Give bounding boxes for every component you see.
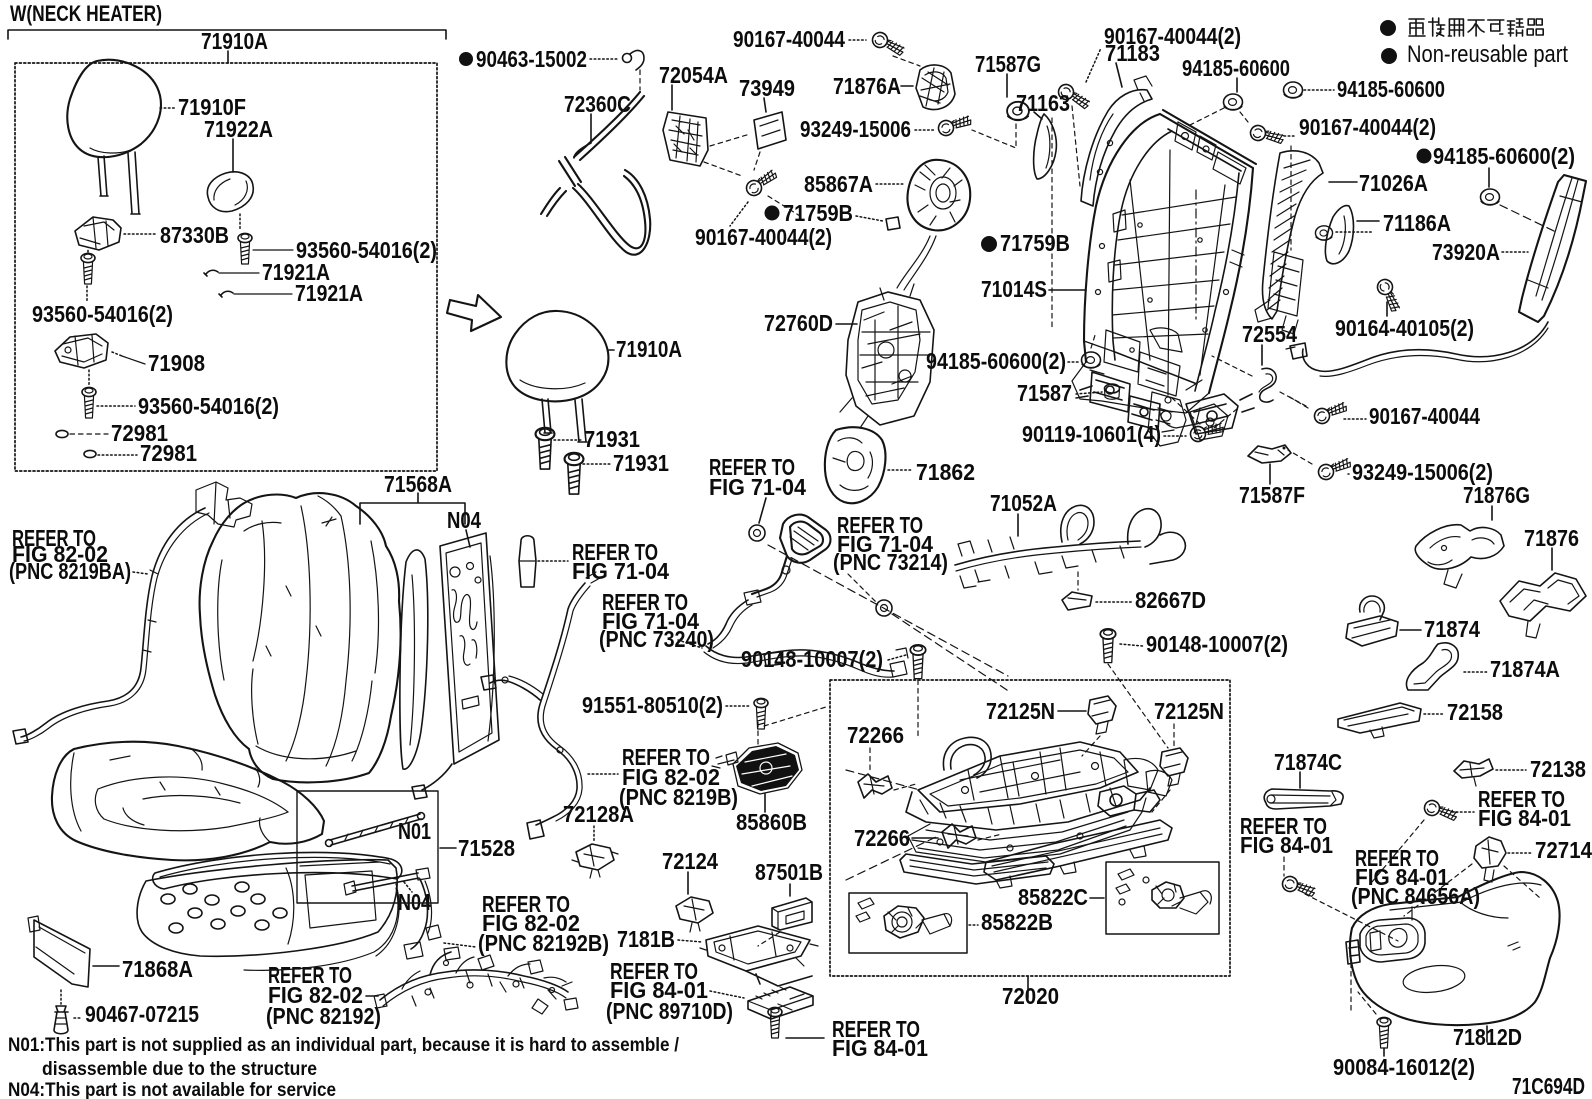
svg-text:71759B: 71759B <box>1000 230 1070 256</box>
svg-text:Non-reusable part: Non-reusable part <box>1407 41 1568 68</box>
svg-text:W(NECK HEATER): W(NECK HEATER) <box>10 1 162 26</box>
svg-text:90148-10007(2): 90148-10007(2) <box>1146 631 1288 657</box>
svg-text:71587G: 71587G <box>975 51 1041 77</box>
svg-text:N01: N01 <box>398 818 431 844</box>
svg-text:72125N: 72125N <box>1154 698 1224 724</box>
svg-text:72128A: 72128A <box>563 801 634 827</box>
svg-text:73949: 73949 <box>739 75 795 101</box>
svg-text:(PNC 8219B): (PNC 8219B) <box>619 784 738 810</box>
svg-text:(PNC 73240): (PNC 73240) <box>599 626 714 652</box>
svg-text:71014S: 71014S <box>981 276 1047 302</box>
svg-text:90167-40044(2): 90167-40044(2) <box>695 224 832 250</box>
svg-text:71931: 71931 <box>584 426 640 452</box>
svg-text:72266: 72266 <box>847 722 904 748</box>
svg-text:71922A: 71922A <box>204 116 273 142</box>
svg-text:71528: 71528 <box>458 835 515 861</box>
svg-text:91551-80510(2): 91551-80510(2) <box>582 692 723 718</box>
svg-text:71759B: 71759B <box>783 200 853 226</box>
svg-text:85822B: 85822B <box>981 909 1053 935</box>
svg-text:72020: 72020 <box>1002 983 1059 1009</box>
svg-text:72266: 72266 <box>854 825 910 851</box>
svg-text:85867A: 85867A <box>804 171 873 197</box>
svg-text:90084-16012(2): 90084-16012(2) <box>1333 1054 1475 1080</box>
svg-text:71874: 71874 <box>1424 616 1480 642</box>
svg-text:71587F: 71587F <box>1239 482 1305 508</box>
svg-text:72714: 72714 <box>1535 837 1592 863</box>
svg-text:N04:This part is not available: N04:This part is not available for servi… <box>8 1079 336 1099</box>
svg-text:94185-60600(2): 94185-60600(2) <box>926 348 1066 374</box>
svg-text:71876: 71876 <box>1524 525 1579 551</box>
svg-text:7181B: 7181B <box>617 926 675 952</box>
svg-text:87501B: 87501B <box>755 859 823 885</box>
svg-text:90167-40044: 90167-40044 <box>733 26 845 52</box>
svg-text:(PNC 8219BA): (PNC 8219BA) <box>9 558 131 584</box>
svg-text:FIG 84-01: FIG 84-01 <box>832 1035 928 1061</box>
svg-text:71921A: 71921A <box>295 280 363 306</box>
svg-text:71C694D: 71C694D <box>1512 1073 1585 1099</box>
svg-text:71186A: 71186A <box>1383 210 1451 236</box>
svg-text:disassemble due to the structu: disassemble due to the structure <box>42 1058 317 1080</box>
svg-text:90167-40044: 90167-40044 <box>1369 403 1480 429</box>
svg-text:(PNC 82192): (PNC 82192) <box>266 1003 381 1029</box>
svg-text:94185-60600(2): 94185-60600(2) <box>1433 143 1575 169</box>
svg-text:72125N: 72125N <box>986 698 1055 724</box>
svg-text:N04: N04 <box>447 507 481 533</box>
svg-text:N01:This part is not supplied: N01:This part is not supplied as an indi… <box>8 1034 680 1056</box>
svg-text:90467-07215: 90467-07215 <box>85 1001 199 1027</box>
svg-text:72981: 72981 <box>140 440 197 466</box>
svg-text:90463-15002: 90463-15002 <box>476 46 587 72</box>
svg-text:FIG 84-01: FIG 84-01 <box>1240 832 1333 858</box>
svg-text:71908: 71908 <box>148 350 205 376</box>
svg-text:72760D: 72760D <box>764 310 833 336</box>
svg-text:87330B: 87330B <box>160 222 229 248</box>
svg-text:71910A: 71910A <box>616 336 682 362</box>
svg-text:72158: 72158 <box>1447 699 1503 725</box>
svg-text:72554: 72554 <box>1242 321 1297 347</box>
svg-text:93560-54016(2): 93560-54016(2) <box>138 393 279 419</box>
svg-text:85822C: 85822C <box>1018 884 1088 910</box>
svg-text:72124: 72124 <box>662 848 718 874</box>
svg-text:FIG 71-04: FIG 71-04 <box>709 474 806 500</box>
svg-text:71183: 71183 <box>1105 40 1160 66</box>
svg-text:(PNC 82192B): (PNC 82192B) <box>478 930 609 956</box>
svg-text:71862: 71862 <box>916 459 975 485</box>
svg-text:71874C: 71874C <box>1274 749 1342 775</box>
svg-text:71931: 71931 <box>613 450 669 476</box>
svg-text:(PNC 73214): (PNC 73214) <box>833 549 948 575</box>
svg-text:94185-60600: 94185-60600 <box>1182 55 1290 81</box>
svg-text:71868A: 71868A <box>122 956 193 982</box>
svg-text:71876A: 71876A <box>833 73 901 99</box>
svg-text:71874A: 71874A <box>1490 656 1560 682</box>
svg-text:71910A: 71910A <box>201 28 268 54</box>
svg-text:71026A: 71026A <box>1359 170 1428 196</box>
svg-text:71052A: 71052A <box>990 490 1057 516</box>
svg-text:73920A: 73920A <box>1432 239 1500 265</box>
svg-text:71876G: 71876G <box>1463 482 1530 508</box>
svg-text:85860B: 85860B <box>736 809 807 835</box>
svg-text:72138: 72138 <box>1530 756 1586 782</box>
svg-text:72054A: 72054A <box>659 62 728 88</box>
svg-text:94185-60600: 94185-60600 <box>1337 76 1445 102</box>
svg-text:(PNC 89710D): (PNC 89710D) <box>606 998 733 1024</box>
svg-text:90164-40105(2): 90164-40105(2) <box>1335 315 1474 341</box>
svg-text:90167-40044(2): 90167-40044(2) <box>1299 114 1436 140</box>
svg-text:93249-15006: 93249-15006 <box>800 116 911 142</box>
svg-text:93560-54016(2): 93560-54016(2) <box>32 301 173 327</box>
svg-text:FIG 71-04: FIG 71-04 <box>572 558 669 584</box>
svg-text:82667D: 82667D <box>1135 587 1206 613</box>
svg-text:FIG 84-01: FIG 84-01 <box>1478 805 1571 831</box>
svg-text:71587: 71587 <box>1017 380 1072 406</box>
